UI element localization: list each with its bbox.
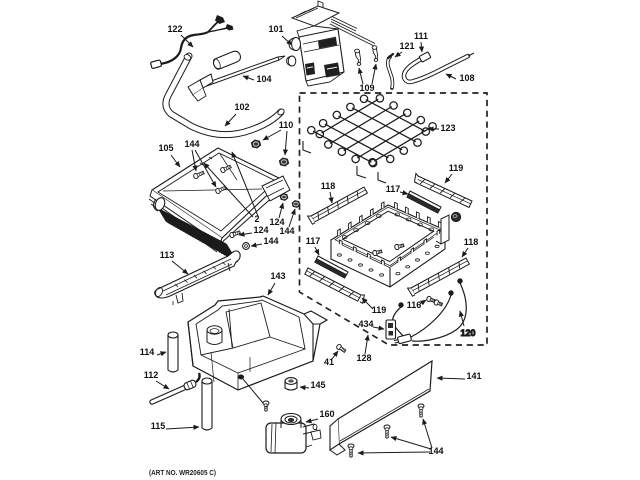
svg-text:105: 105	[158, 143, 173, 153]
svg-text:101: 101	[268, 24, 283, 34]
svg-text:111: 111	[414, 31, 428, 41]
svg-text:118: 118	[464, 237, 479, 247]
svg-text:2: 2	[254, 214, 259, 224]
svg-text:144: 144	[279, 226, 294, 236]
svg-text:(ART NO. WR20605 C): (ART NO. WR20605 C)	[149, 468, 217, 477]
svg-text:120: 120	[460, 328, 475, 338]
svg-text:115: 115	[151, 421, 166, 431]
svg-text:145: 145	[310, 380, 325, 390]
svg-text:144: 144	[428, 446, 443, 456]
svg-text:160: 160	[319, 409, 334, 419]
svg-text:116: 116	[407, 300, 422, 310]
svg-text:143: 143	[270, 271, 285, 281]
svg-text:119: 119	[449, 163, 464, 173]
svg-text:113: 113	[160, 250, 175, 260]
svg-text:102: 102	[234, 102, 249, 112]
svg-text:123: 123	[440, 123, 455, 133]
svg-text:119: 119	[372, 305, 387, 315]
svg-text:114: 114	[140, 347, 155, 357]
svg-text:434: 434	[358, 319, 373, 329]
svg-text:110: 110	[279, 120, 294, 130]
svg-text:124: 124	[253, 225, 268, 235]
svg-text:109: 109	[359, 83, 374, 93]
svg-text:117: 117	[386, 184, 401, 194]
svg-text:104: 104	[256, 74, 271, 84]
svg-text:108: 108	[459, 73, 474, 83]
svg-text:141: 141	[466, 371, 481, 381]
svg-text:121: 121	[399, 41, 414, 51]
svg-text:118: 118	[321, 181, 336, 191]
svg-text:117: 117	[306, 236, 321, 246]
svg-text:112: 112	[144, 370, 159, 380]
svg-text:128: 128	[356, 353, 371, 363]
svg-text:144: 144	[263, 236, 278, 246]
svg-text:144: 144	[184, 139, 199, 149]
svg-text:122: 122	[167, 24, 182, 34]
